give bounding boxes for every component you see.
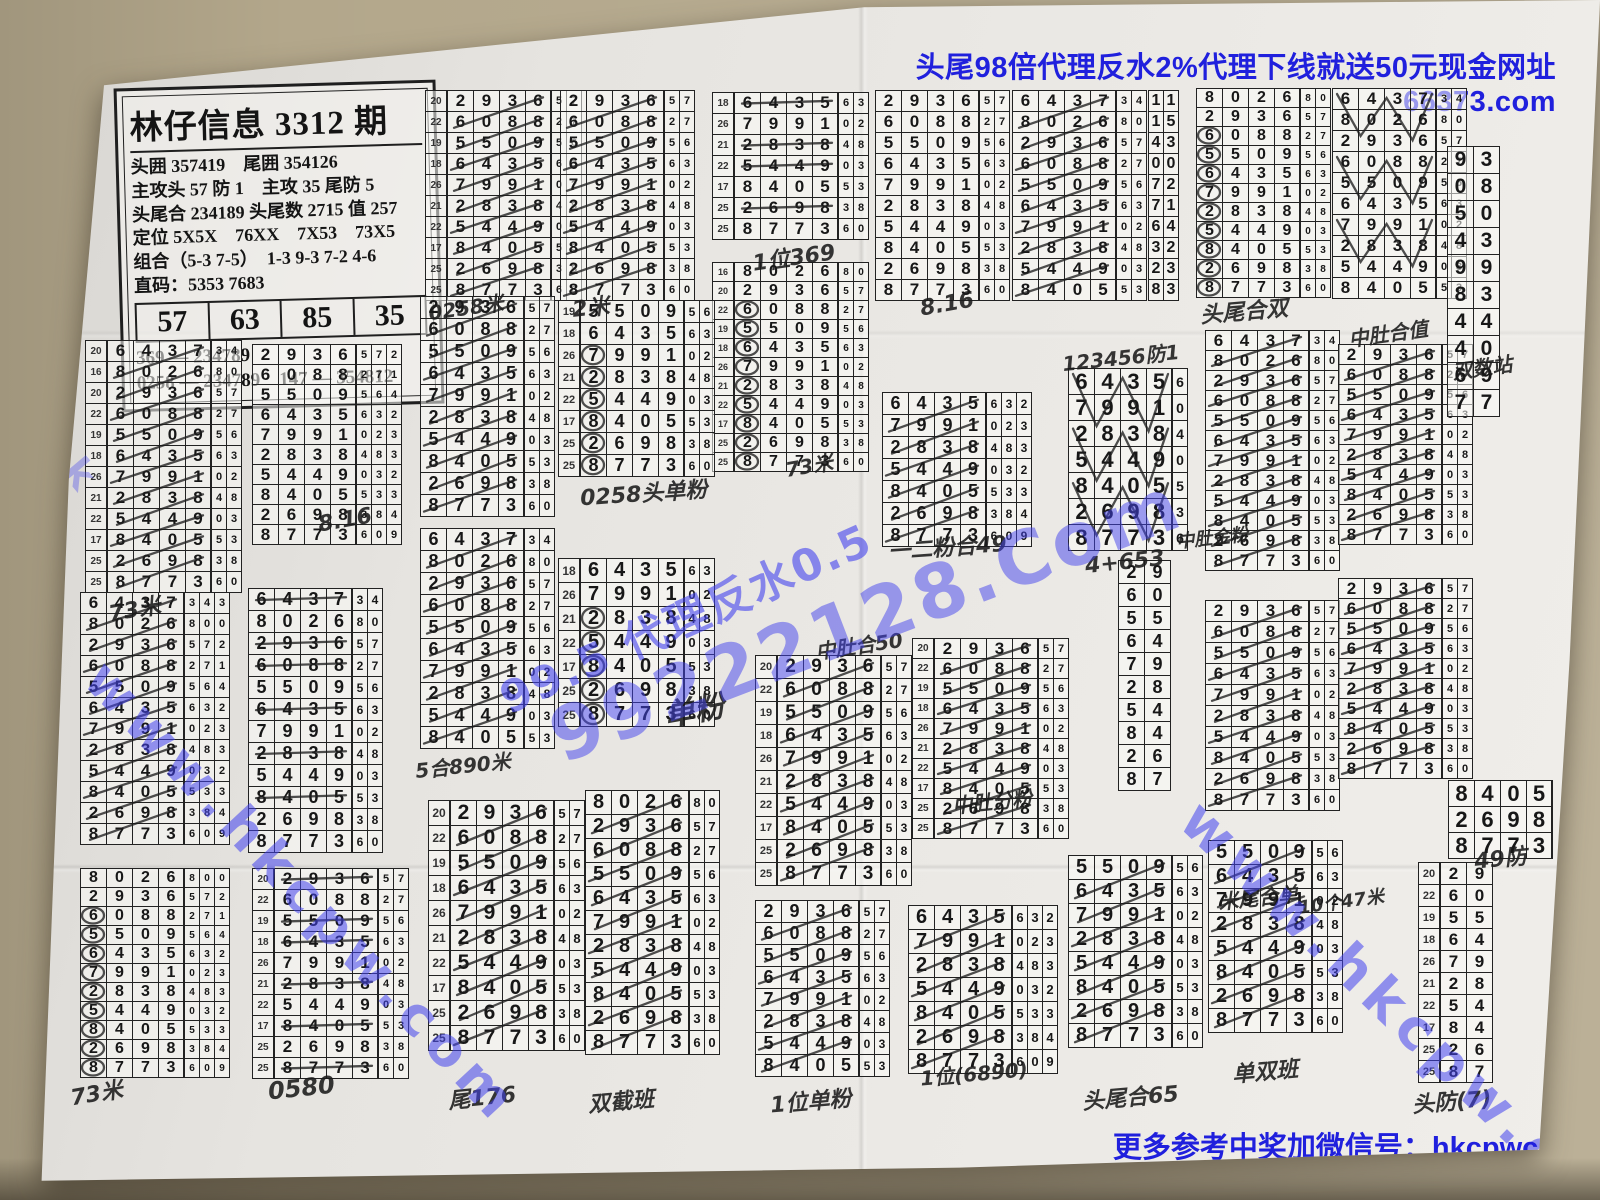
handwritten-annotation: 49防 [1472, 838, 1528, 875]
pen-stroke [1198, 166, 1220, 182]
pen-stroke [736, 435, 758, 451]
pen-stroke [256, 597, 346, 600]
pen-stroke [1073, 374, 1168, 431]
pen-stroke [82, 984, 104, 1000]
pen-stroke [736, 359, 758, 375]
pen-stroke [1337, 94, 1432, 140]
pen-stroke [1198, 204, 1220, 220]
pen-stroke [582, 704, 604, 724]
pen-stroke [742, 164, 832, 167]
pen-stroke [1342, 511, 1434, 540]
pen-stroke [1198, 242, 1220, 258]
pen-stroke [1337, 157, 1432, 203]
pen-stroke [736, 397, 758, 413]
pen-stroke [424, 480, 516, 512]
pen-stroke [282, 982, 372, 985]
pen-stroke [1198, 128, 1220, 144]
pen-stroke [82, 1041, 104, 1057]
pen-marks-overlay [0, 0, 1600, 1200]
pen-stroke [1198, 223, 1220, 239]
pen-stroke [82, 965, 104, 981]
pen-stroke [736, 340, 758, 356]
pen-stroke [454, 1009, 546, 1045]
pen-stroke [781, 847, 873, 880]
pen-stroke [1198, 280, 1220, 296]
pen-stroke [256, 751, 346, 754]
paper-wrap: 头尾98倍代理反水2%代理下线就送50元现金网址66373.com 林仔信息 3… [0, 0, 1600, 1200]
pen-stroke [1073, 483, 1168, 540]
pen-stroke [82, 1060, 104, 1076]
handwritten-annotation: 2米 [570, 288, 610, 324]
pen-stroke [82, 908, 104, 924]
pen-stroke [736, 454, 758, 470]
pen-stroke [582, 346, 604, 364]
pen-stroke [582, 632, 604, 652]
pen-stroke [582, 656, 604, 676]
ad-banner-bottom: 更多参考中奖加微信号：hkcpwcn [1056, 1124, 1556, 1166]
pen-stroke [1198, 185, 1220, 201]
pen-stroke [582, 434, 604, 452]
pen-stroke [424, 712, 516, 744]
pen-stroke [1198, 261, 1220, 277]
photo-of-lottery-chart: 头尾98倍代理反水2%代理下线就送50元现金网址66373.com 林仔信息 3… [0, 0, 1600, 1200]
pen-stroke [582, 680, 604, 700]
pen-stroke [282, 940, 372, 943]
pen-stroke [256, 707, 346, 710]
pen-stroke [582, 456, 604, 474]
pen-stroke [82, 1003, 104, 1019]
paper-sheet: 头尾98倍代理反水2%代理下线就送50元现金网址66373.com 林仔信息 3… [0, 0, 1600, 1200]
pen-stroke [282, 919, 372, 922]
pen-stroke [1342, 745, 1434, 774]
pen-stroke [736, 321, 758, 337]
pen-stroke [582, 608, 604, 628]
pen-stroke [282, 877, 372, 880]
pen-stroke [1209, 775, 1301, 805]
pen-stroke [736, 378, 758, 394]
pen-stroke [582, 412, 604, 430]
pen-stroke [1337, 220, 1432, 266]
pen-stroke [742, 101, 832, 104]
pen-stroke [82, 1022, 104, 1038]
pen-stroke [256, 663, 346, 666]
handwritten-annotation: 单双班 [1231, 1051, 1300, 1089]
pen-stroke [582, 390, 604, 408]
pen-stroke [742, 143, 832, 146]
pen-stroke [82, 946, 104, 962]
pen-stroke [282, 1024, 372, 1027]
pen-stroke [582, 368, 604, 386]
pen-stroke [256, 795, 346, 798]
pen-stroke [1016, 265, 1108, 295]
pen-stroke [282, 1066, 372, 1069]
pen-stroke [1073, 429, 1168, 486]
pen-stroke [1198, 147, 1220, 163]
pen-stroke [736, 416, 758, 432]
pen-stroke [256, 641, 346, 644]
pen-stroke [742, 206, 832, 209]
pen-stroke [82, 927, 104, 943]
pen-stroke [736, 302, 758, 318]
handwritten-annotation: 双截班 [587, 1081, 656, 1119]
